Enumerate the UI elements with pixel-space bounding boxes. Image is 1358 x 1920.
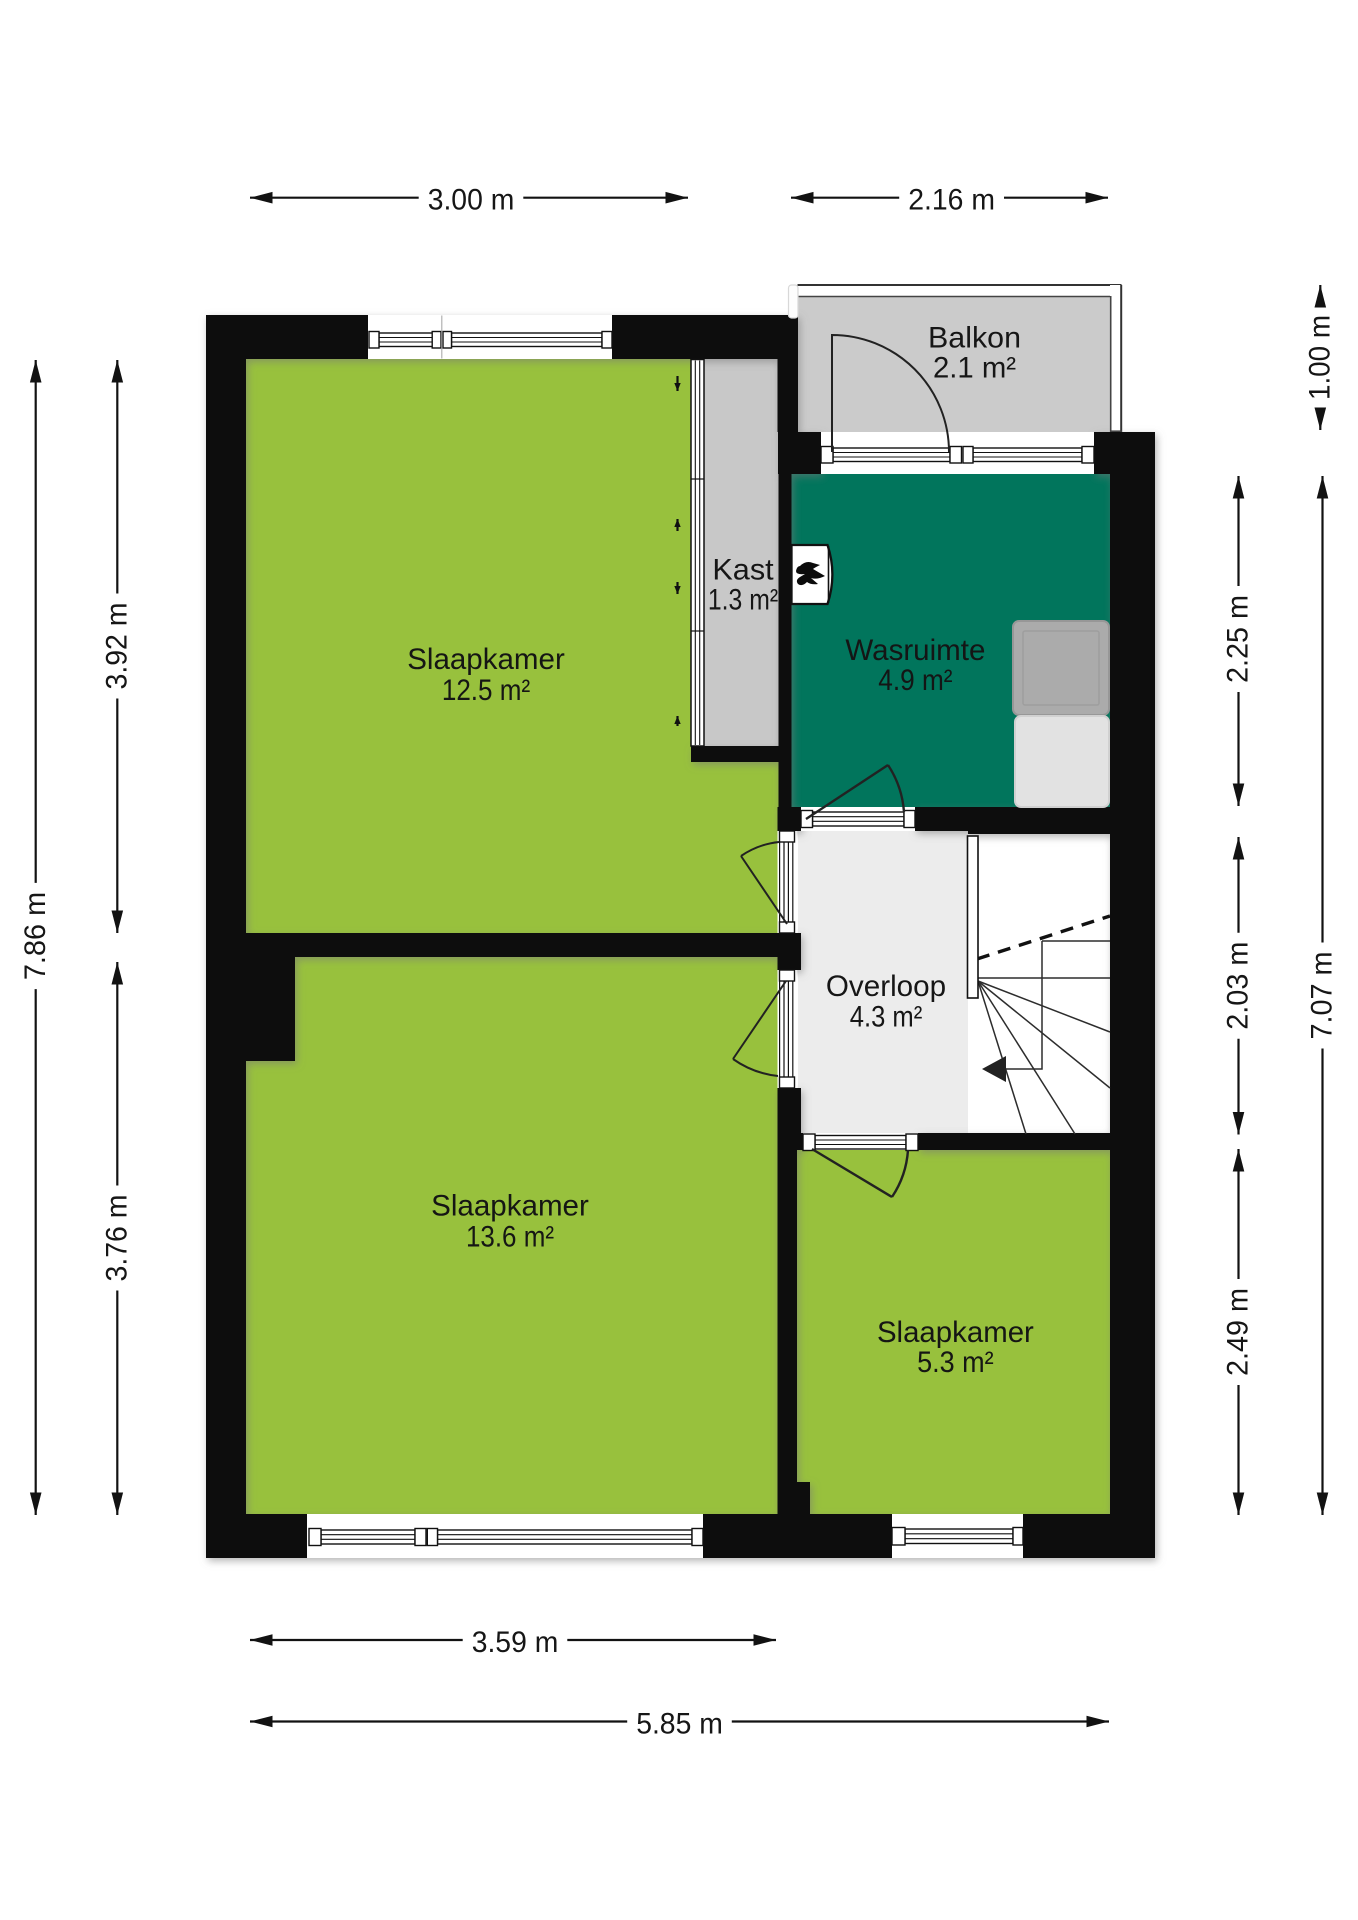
svg-text:2.16 m: 2.16 m (908, 184, 995, 217)
svg-text:Kast: Kast (712, 553, 774, 586)
svg-text:Balkon: Balkon (928, 322, 1021, 355)
svg-text:7.07 m: 7.07 m (1306, 952, 1339, 1040)
svg-text:2.03 m: 2.03 m (1222, 942, 1255, 1030)
svg-text:3.00 m: 3.00 m (428, 184, 515, 217)
svg-text:Slaapkamer: Slaapkamer (407, 643, 565, 676)
svg-text:13.6 m²: 13.6 m² (466, 1221, 554, 1254)
svg-text:1.00 m: 1.00 m (1304, 315, 1337, 400)
svg-text:4.3 m²: 4.3 m² (850, 1000, 923, 1033)
svg-text:2.25 m: 2.25 m (1222, 595, 1255, 683)
svg-text:2.1 m²: 2.1 m² (933, 352, 1016, 385)
svg-text:Slaapkamer: Slaapkamer (431, 1190, 589, 1223)
svg-text:3.92 m: 3.92 m (101, 603, 134, 690)
svg-text:2.49 m: 2.49 m (1222, 1288, 1255, 1376)
svg-text:5.3 m²: 5.3 m² (917, 1346, 994, 1379)
svg-text:3.76 m: 3.76 m (101, 1195, 134, 1282)
svg-text:Wasruimte: Wasruimte (845, 634, 985, 667)
svg-text:3.59 m: 3.59 m (472, 1626, 559, 1659)
svg-text:12.5 m²: 12.5 m² (442, 674, 530, 707)
svg-text:7.86 m: 7.86 m (19, 892, 52, 980)
svg-text:Overloop: Overloop (826, 970, 946, 1003)
svg-text:5.85 m: 5.85 m (636, 1707, 723, 1740)
svg-text:1.3 m²: 1.3 m² (708, 583, 778, 616)
svg-text:Slaapkamer: Slaapkamer (877, 1316, 1034, 1349)
svg-text:4.9 m²: 4.9 m² (878, 664, 952, 697)
